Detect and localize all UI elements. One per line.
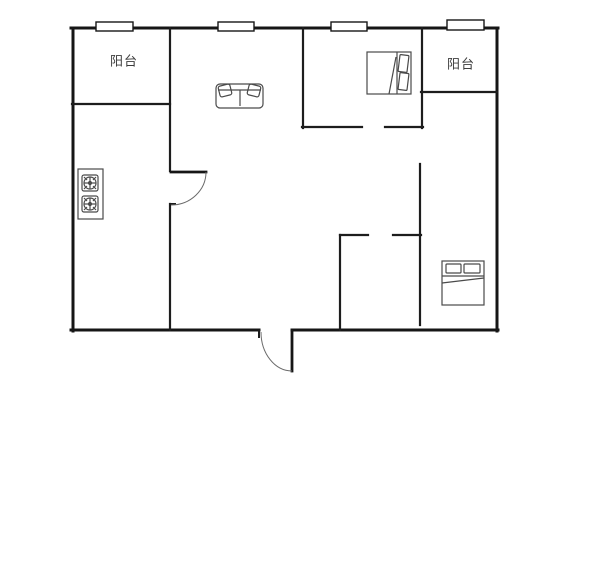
sofa-icon: [216, 84, 263, 108]
window-symbol: [96, 22, 133, 31]
room-label-balcony-left: 阳台: [110, 51, 138, 70]
double-bed-icon-part: [442, 278, 484, 283]
gas-stove-icon: [78, 169, 103, 219]
window-symbol: [218, 22, 254, 31]
room-label-balcony-right: 阳台: [447, 54, 475, 73]
double-bed-icon-part: [442, 261, 484, 305]
double-bed-icon-part: [389, 57, 396, 94]
double-bed-icon-part: [398, 55, 409, 73]
double-bed-icon-part: [398, 73, 409, 91]
double-bed-icon-part: [446, 264, 461, 273]
double-bed-icon: [367, 52, 411, 94]
floorplan-canvas: 阳台 阳台: [0, 0, 600, 584]
double-bed-icon-part: [464, 264, 480, 273]
window-symbol: [331, 22, 367, 31]
floorplan-svg: [0, 0, 600, 584]
window-symbol: [447, 20, 484, 30]
double-bed-icon: [442, 261, 484, 305]
door-swing-arc: [171, 172, 206, 205]
door-swing-arc: [261, 332, 292, 371]
